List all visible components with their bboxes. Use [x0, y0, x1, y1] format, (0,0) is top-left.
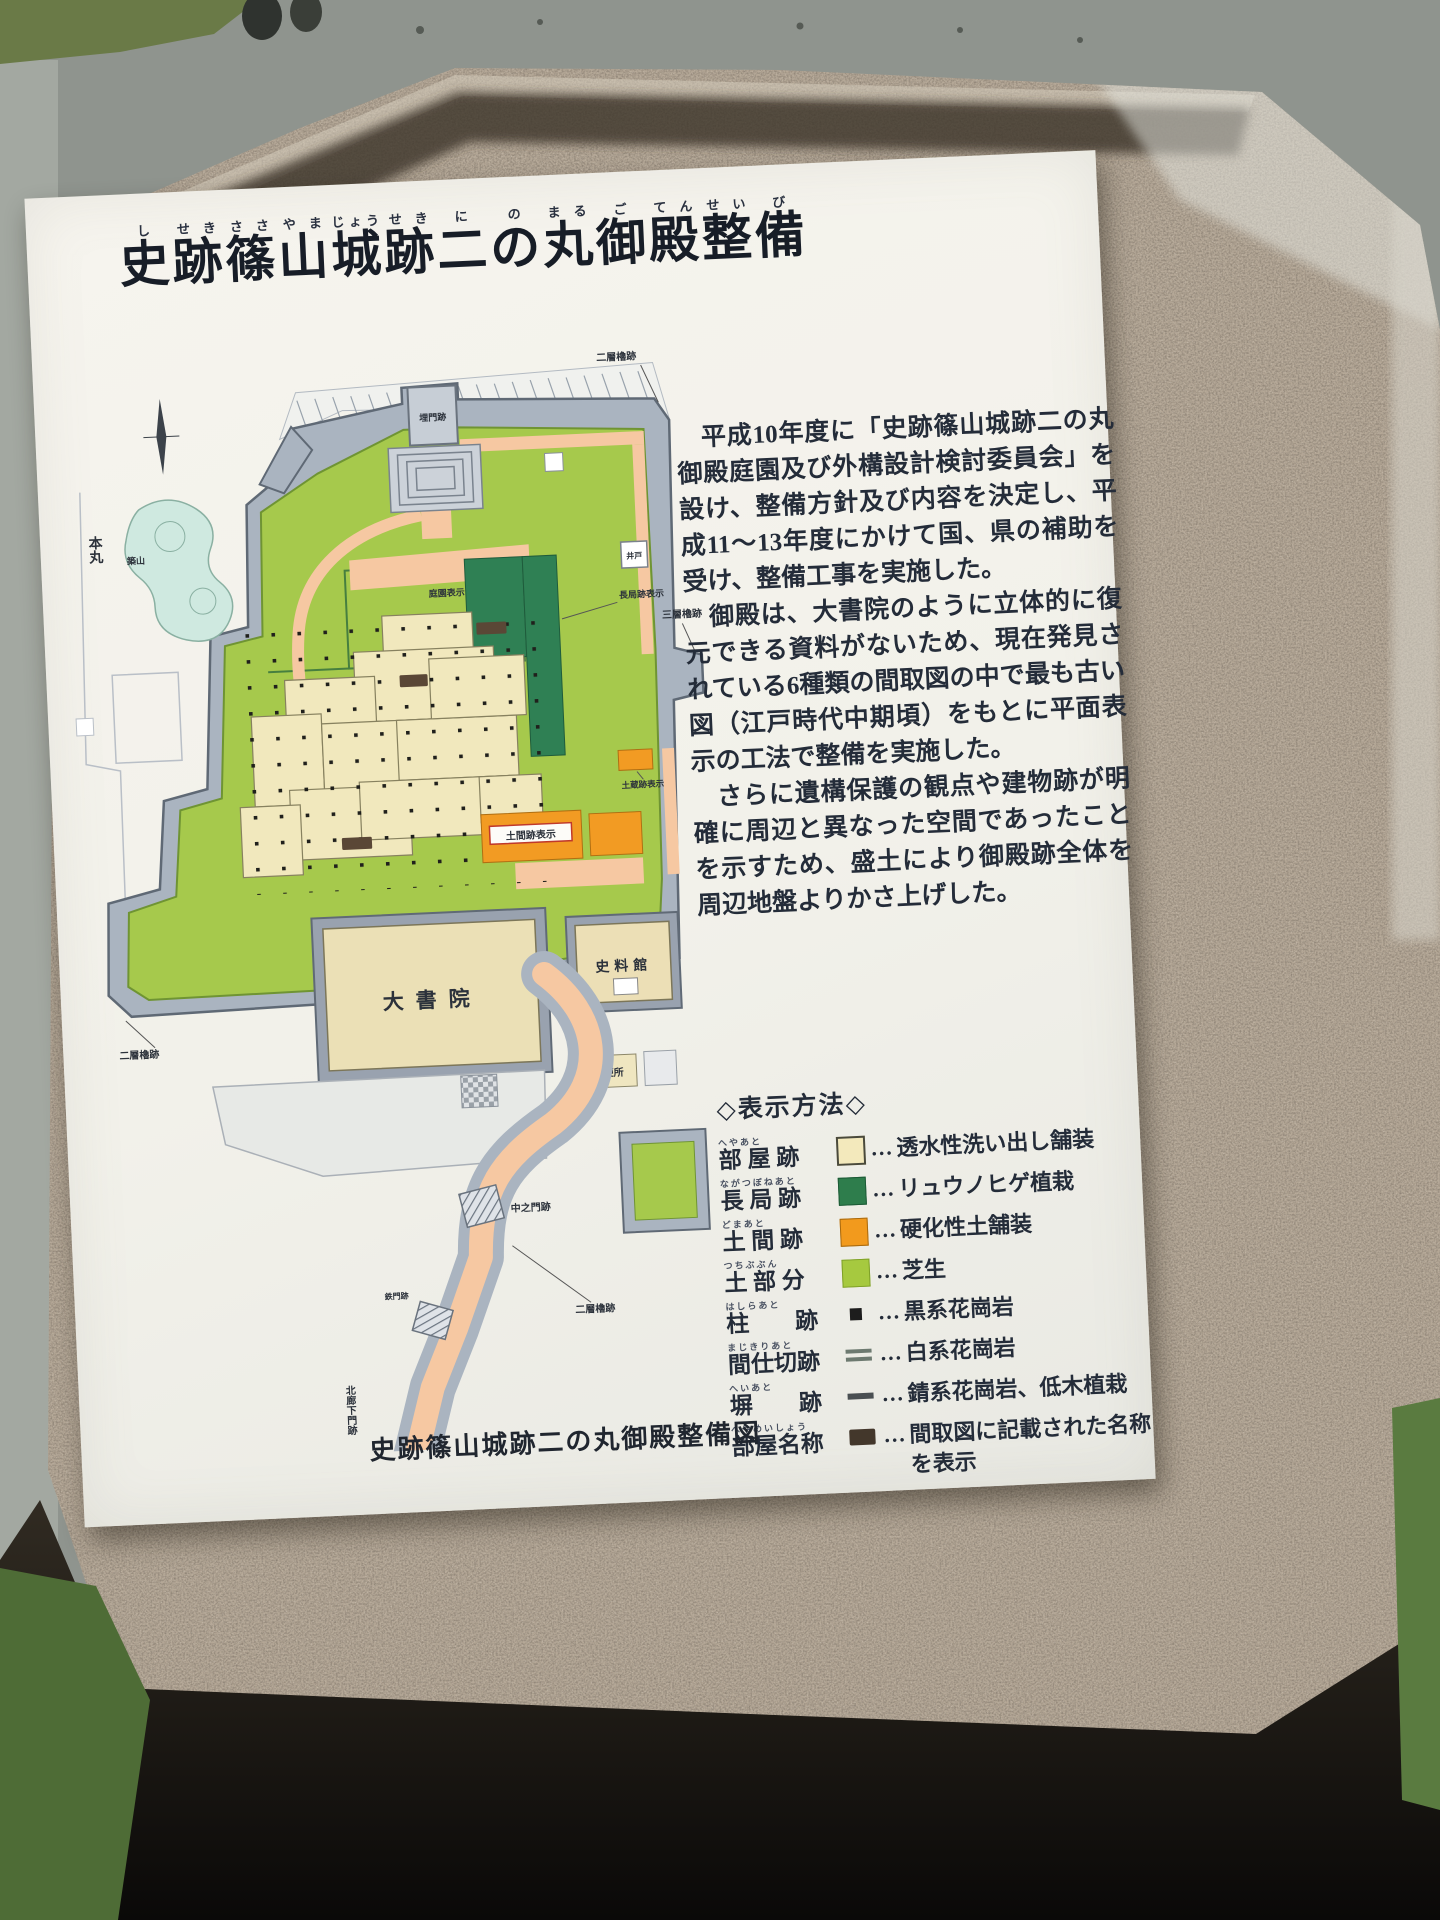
description-column: 平成10年度に「史跡篠山城跡二の丸御殿庭園及び外構設計検討委員会」を設け、整備方… [675, 402, 1135, 925]
legend-swatch-doma [840, 1218, 869, 1247]
legend-swatch-nagatsubone [838, 1177, 867, 1206]
title-char: 殿てん [648, 211, 702, 269]
title-char: 山やま [277, 228, 331, 286]
label-yagura2-bottom-left: 二層櫓跡 [119, 1048, 160, 1063]
paragraph-preservation: さらに遺構保護の観点や建物跡が明確に周辺と異なった空間であったことを示すため、盛… [692, 761, 1136, 925]
map-legend: ◇表示方法◇ へやあと部 屋 跡 … 透水性洗い出し舗装 ながつぼねあと長 局 … [716, 1071, 1162, 1493]
label-kita-roka-mon: 北廊下門跡 [343, 1384, 357, 1436]
legend-row-heyameisho: へやめいしょう部屋名称 … 間取図に記載された名称を表示 [731, 1406, 1161, 1488]
title-char: 跡せき [171, 233, 225, 291]
legend-leader: … [881, 1376, 909, 1411]
legend-label: 間仕切跡 [728, 1348, 847, 1379]
overexposed-wash-right-edge [1392, 180, 1440, 940]
honmaru-small-structure [76, 718, 94, 736]
legend-leader: … [877, 1294, 905, 1329]
label-top-gate: 埋門跡 [419, 411, 446, 423]
legend-label: 部 屋 跡 [718, 1143, 837, 1174]
leader-yagura2-br [512, 1242, 591, 1305]
title-char: 備び [754, 206, 808, 264]
legend-swatch-pillar [850, 1308, 863, 1321]
label-tetsumon: 鉄門跡 [384, 1291, 408, 1302]
label-honmaru: 本丸 [86, 535, 104, 566]
sign-panel: 史し跡せき篠ささ山やま城じょう跡せき二にのの丸まる御ご殿てん整せい備び 本丸 [24, 150, 1155, 1527]
title-char: 整せい [701, 209, 755, 267]
title-char: 御ご [595, 214, 649, 272]
label-nakanomon: 中之門跡 [510, 1200, 551, 1215]
title-char: 丸まる [542, 216, 596, 274]
site-plan-map: 本丸 築山 長局跡 [39, 317, 745, 1466]
legend-desc: 錆系花崗岩、低木植栽 [907, 1366, 1128, 1409]
label-dozo: 土蔵跡表示 [621, 778, 664, 790]
utility-box [613, 978, 638, 995]
lawn-patch-southeast [632, 1141, 697, 1220]
legend-label: 土 間 跡 [722, 1225, 841, 1256]
legend-desc: 間取図に記載された名称を表示 [909, 1406, 1162, 1480]
legend-swatch-lawn [841, 1259, 870, 1288]
legend-leader: … [871, 1171, 899, 1206]
small-structure [545, 453, 564, 472]
legend-label: 長 局 跡 [720, 1184, 839, 1215]
legend-leader: … [875, 1253, 903, 1288]
legend-swatch-fence [847, 1393, 873, 1400]
title-char: 史し [118, 235, 172, 293]
legend-swatch-nametag [849, 1428, 876, 1445]
pale-structure [644, 1050, 678, 1085]
legend-desc: リュウノヒゲ植栽 [897, 1163, 1074, 1204]
legend-desc: 白系花崗岩 [905, 1330, 1016, 1368]
map-pond [123, 497, 234, 644]
sign-title: 史し跡せき篠ささ山やま城じょう跡せき二にのの丸まる御ご殿てん整せい備び [118, 193, 810, 297]
legend-desc: 芝生 [901, 1251, 946, 1286]
paragraph-history: 平成10年度に「史跡篠山城跡二の丸御殿庭園及び外構設計検討委員会」を設け、整備方… [675, 402, 1121, 602]
legend-swatch-room [836, 1135, 866, 1165]
legend-leader: … [873, 1212, 901, 1247]
entrance-pavement [461, 1074, 498, 1108]
leader-yagura2-bl [126, 1020, 155, 1049]
legend-desc: 黒系花崗岩 [903, 1289, 1014, 1327]
label-ido: 井戸 [626, 550, 642, 561]
paragraph-method: 御殿は、大書院のように立体的に復元できる資料がないため、現在発見されている6種類… [683, 581, 1129, 781]
title-char: 跡せき [383, 223, 437, 281]
legend-desc: 硬化性土舗装 [899, 1206, 1032, 1245]
title-char: のの [489, 218, 543, 276]
gate-stairs [388, 444, 483, 512]
legend-swatch-partition [845, 1349, 871, 1354]
honmaru-structure-outline [112, 672, 182, 763]
title-char: 篠ささ [224, 230, 278, 288]
label-nagatsubone: 長局跡表示 [619, 587, 664, 600]
legend-desc: 透水性洗い出し舗装 [896, 1121, 1095, 1163]
label-oshoin: 大書院 [382, 986, 482, 1014]
legend-label: 柱 跡 [726, 1307, 845, 1338]
title-char: 二に [436, 221, 490, 279]
legend-leader: … [883, 1417, 911, 1452]
label-tsukiyama: 築山 [126, 555, 145, 567]
label-teien: 庭園表示 [428, 586, 464, 599]
legend-heading: ◇表示方法◇ [716, 1071, 1145, 1126]
label-yagura2-bottom-right: 二層櫓跡 [575, 1301, 616, 1316]
legend-label: 土 部 分 [724, 1266, 843, 1297]
north-compass-icon [142, 398, 181, 476]
title-char: 城じょう [330, 226, 384, 284]
legend-leader: … [870, 1130, 898, 1165]
label-yagura2-top-right: 二層櫓跡 [596, 349, 637, 364]
legend-leader: … [879, 1335, 907, 1370]
